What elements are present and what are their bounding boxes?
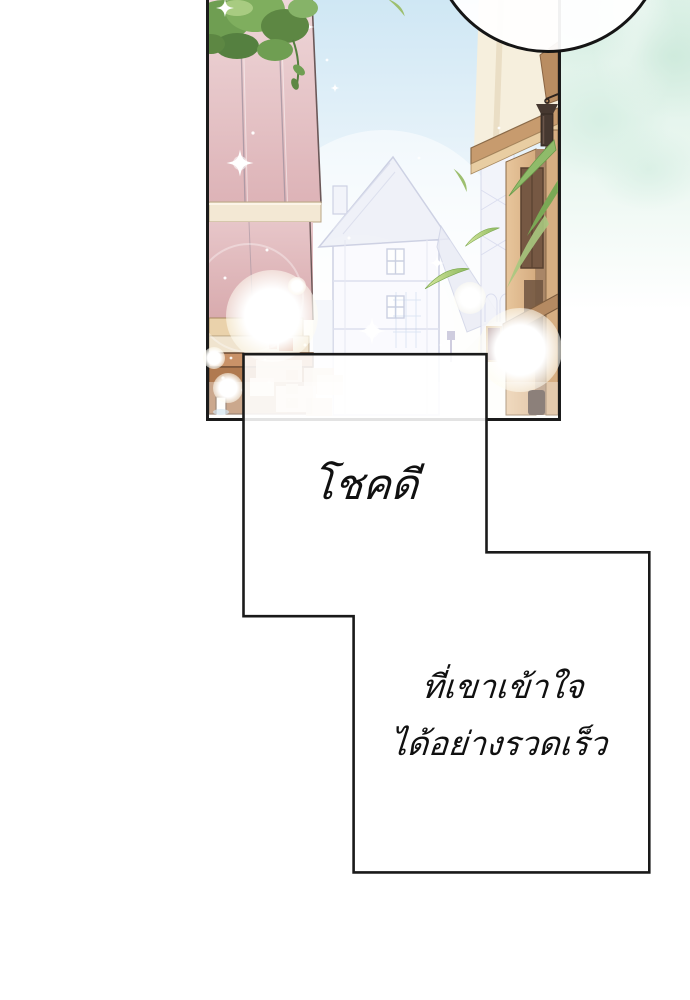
- caption-bottom: ที่เขาเข้าใจ ได้อย่างรวดเร็ว: [344, 556, 658, 870]
- caption-top-text: โชคดี: [309, 452, 420, 518]
- webtoon-page: โชคดี ที่เขาเข้าใจ ได้อย่างรวดเร็ว: [0, 0, 690, 1000]
- caption-bottom-line1: ที่เขาเข้าใจ: [420, 659, 586, 716]
- caption-bottom-line2: ได้อย่างรวดเร็ว: [388, 716, 609, 773]
